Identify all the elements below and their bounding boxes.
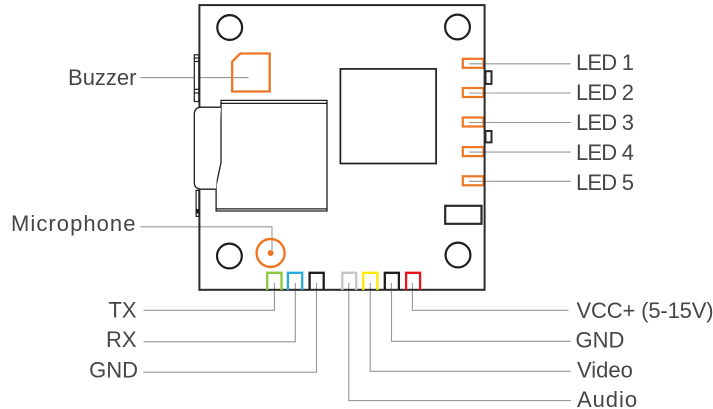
svg-text:GND: GND [576, 328, 625, 353]
svg-text:Microphone: Microphone [11, 211, 136, 236]
svg-text:TX: TX [108, 297, 136, 322]
svg-text:VCC+ (5-15V): VCC+ (5-15V) [577, 298, 713, 323]
svg-text:LED 4: LED 4 [576, 140, 634, 165]
svg-text:LED 2: LED 2 [576, 80, 634, 105]
svg-text:GND: GND [89, 358, 138, 383]
svg-text:RX: RX [106, 327, 137, 352]
svg-text:LED 5: LED 5 [576, 170, 634, 195]
svg-text:LED 1: LED 1 [576, 50, 634, 75]
svg-text:Video: Video [577, 358, 633, 383]
svg-text:Buzzer: Buzzer [68, 65, 136, 90]
svg-text:LED 3: LED 3 [576, 110, 634, 135]
svg-text:Audio: Audio [577, 387, 638, 409]
